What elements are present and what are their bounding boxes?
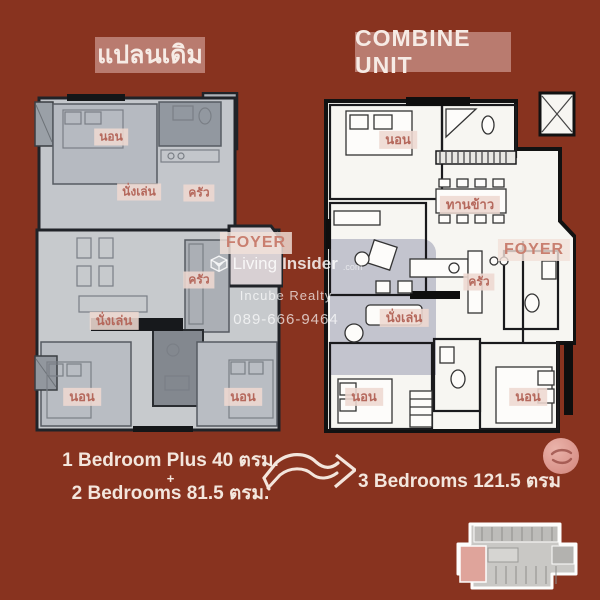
combine-unit-badge: COMBINE UNIT <box>355 32 511 72</box>
room-label-bedroom: นอน <box>63 388 101 406</box>
room-label-kitchen: ครัว <box>463 274 494 291</box>
before-line2: 2 Bedrooms 81.5 ตรม. <box>72 483 270 506</box>
room-label-living: นั่งเล่น <box>380 309 429 327</box>
room-label-foyer: FOYER <box>220 232 292 254</box>
combine-direction-arrow-icon <box>256 444 356 500</box>
flyer-canvas: แปลนเดิม COMBINE UNIT <box>0 0 600 600</box>
room-label-bedroom: นอน <box>224 388 262 406</box>
original-plan-title: แปลนเดิม <box>97 35 203 75</box>
room-label-bedroom: นอน <box>94 129 128 146</box>
room-label-kitchen: ครัว <box>183 185 214 202</box>
original-floor-plan <box>33 92 283 437</box>
room-label-bedroom: นอน <box>379 131 417 149</box>
before-line1: 1 Bedroom Plus 40 ตรม. <box>62 450 279 473</box>
combine-unit-title: COMBINE UNIT <box>355 25 511 79</box>
room-label-foyer: FOYER <box>498 239 570 261</box>
room-label-living: นั่งเล่น <box>90 312 139 330</box>
room-label-living: นั่งเล่น <box>117 184 161 201</box>
building-key-plan <box>448 518 580 598</box>
room-label-kitchen: ครัว <box>183 272 214 289</box>
brand-sticker-icon <box>543 438 579 474</box>
room-label-bedroom: นอน <box>509 388 547 406</box>
after-summary: 3 Bedrooms 121.5 ตรม <box>358 466 558 496</box>
room-label-dining: ทานข้าว <box>440 196 500 214</box>
original-plan-badge: แปลนเดิม <box>95 37 205 73</box>
room-label-bedroom: นอน <box>345 388 383 406</box>
